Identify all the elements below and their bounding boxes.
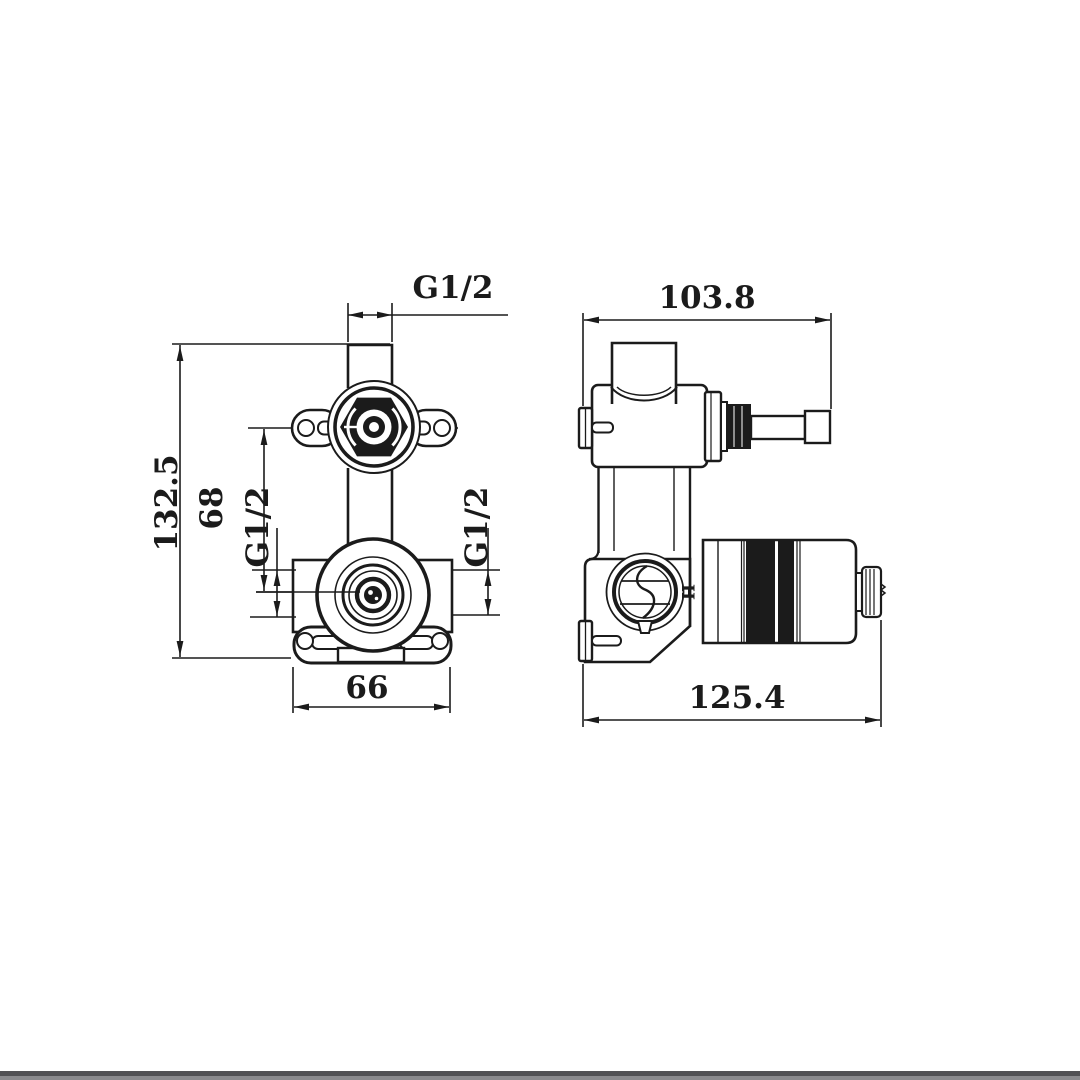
plate-hole-left	[297, 633, 313, 649]
arrowhead	[261, 430, 268, 445]
arrowhead	[377, 312, 392, 319]
port-center-glint2	[375, 597, 379, 601]
cartridge	[703, 540, 856, 643]
arrowhead	[584, 317, 599, 324]
neck-shoulder-left	[589, 550, 599, 559]
spindle-stack	[705, 392, 830, 461]
cartridge-end-boss	[856, 567, 885, 617]
front-port-boss	[256, 539, 429, 651]
port-center-glint	[368, 590, 373, 595]
footer-bar-light	[0, 1076, 1080, 1080]
arrowhead	[177, 346, 184, 361]
dim-label-port-spacing: 68	[194, 486, 230, 529]
dim-base-width: 66	[293, 667, 450, 713]
arrowhead	[434, 704, 449, 711]
side-view: 103.8	[579, 280, 885, 727]
cartridge-band-1	[746, 540, 775, 643]
front-view: 132.5 68 G1/2	[149, 270, 508, 713]
stem-seal-black	[727, 404, 751, 449]
arrowhead	[485, 599, 492, 614]
arrowhead	[274, 601, 281, 616]
arrowhead	[584, 717, 599, 724]
clip-peg	[592, 636, 621, 646]
arrowhead	[815, 317, 830, 324]
boss-bottom-notch	[638, 621, 652, 633]
stem-step	[721, 402, 727, 451]
dim-label-base-width: 66	[345, 670, 388, 706]
dim-top-thread: G1/2	[348, 270, 508, 342]
end-boss-body	[862, 567, 881, 617]
dim-label-left-thread: G1/2	[240, 487, 276, 568]
dim-right-thread: G1/2	[453, 487, 500, 615]
arrowhead	[865, 717, 880, 724]
left-ear-hole	[298, 420, 314, 436]
plate-hole-right	[432, 633, 448, 649]
dim-label-top-thread: G1/2	[413, 270, 494, 306]
port-center	[364, 586, 382, 604]
dim-left-thread: G1/2	[240, 487, 296, 617]
valve-technical-drawing: 132.5 68 G1/2	[0, 0, 1080, 1080]
hex-bore-center	[369, 422, 379, 432]
dim-label-top-depth: 103.8	[658, 280, 755, 316]
arrowhead	[274, 571, 281, 586]
boss-thick-ring	[614, 561, 676, 623]
hot-indicator-label: H	[677, 584, 697, 600]
top-fitting	[328, 381, 420, 473]
cartridge-band-2	[778, 540, 794, 643]
arrowhead	[177, 641, 184, 656]
stem-shaft	[751, 416, 805, 439]
dim-label-overall-depth: 125.4	[688, 680, 785, 716]
arrowhead	[348, 312, 363, 319]
right-ear-hole	[434, 420, 450, 436]
stem-end-cap	[805, 411, 830, 443]
arrowhead	[485, 571, 492, 586]
clip-peg	[592, 423, 613, 433]
arrowhead	[261, 575, 268, 590]
arrowhead	[294, 704, 309, 711]
dim-label-right-thread: G1/2	[459, 487, 495, 568]
neck-section	[589, 467, 674, 559]
stem-flange	[705, 392, 721, 461]
dim-label-overall-height: 132.5	[149, 454, 185, 551]
technical-drawing-page: 132.5 68 G1/2	[0, 0, 1080, 1080]
